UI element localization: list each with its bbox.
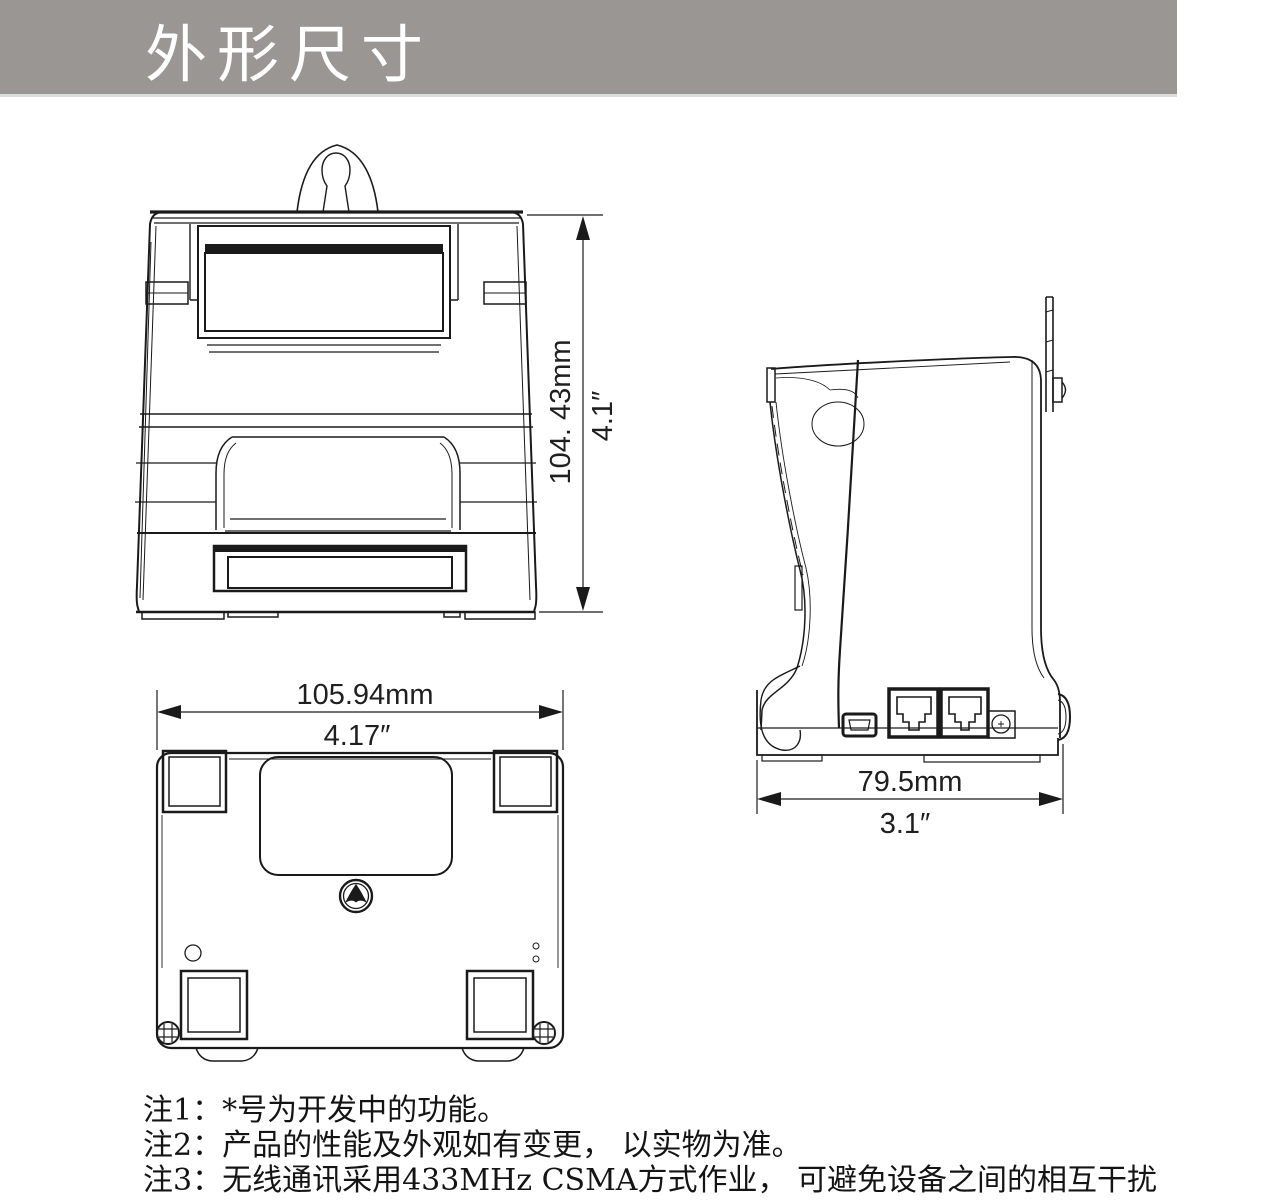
- mini-usb-port: [843, 714, 876, 736]
- front-feet: [136, 612, 535, 619]
- pin-hole: [533, 943, 539, 949]
- rj-port: [889, 689, 938, 737]
- middle-band: [139, 414, 533, 427]
- side-depth-inch-label: 3.1″: [880, 808, 931, 840]
- bottom-view: 105.94mm 4.17″: [157, 679, 563, 1061]
- arrow-right-icon: [539, 705, 563, 719]
- center-emblem-icon: [340, 880, 372, 912]
- front-view: [135, 145, 537, 619]
- footnotes: 注1：*号为开发中的功能。 注2：产品的性能及外观如有变更， 以实物为准。 注3…: [143, 1093, 1157, 1198]
- power-jack: [988, 711, 1015, 738]
- corner-screw-icon: [157, 1022, 179, 1044]
- arrow-right-icon: [1039, 792, 1063, 806]
- arrow-down-icon: [576, 587, 590, 611]
- dimension-drawing: 104. 43mm 4.1″ 105.94mm 4.17″: [0, 0, 1271, 1200]
- base-slot: [137, 533, 536, 591]
- arrow-left-icon: [757, 792, 781, 806]
- arrow-left-icon: [157, 705, 181, 719]
- front-height-mm-label: 104. 43mm: [545, 339, 577, 484]
- cover-edge: [838, 360, 858, 728]
- paper-cover-window: [190, 224, 458, 352]
- front-height-inch-label: 4.1″: [587, 391, 619, 442]
- bottom-width-dimension: 105.94mm 4.17″: [157, 679, 563, 752]
- latch-oval: [812, 402, 864, 446]
- note-1: 注1：*号为开发中的功能。: [143, 1093, 1157, 1128]
- note-3: 注3：无线通讯采用433MHz CSMA方式作业， 可避免设备之间的相互干扰: [143, 1163, 1157, 1198]
- corner-screw-icon: [533, 1022, 555, 1044]
- foot-bump: [462, 1048, 524, 1061]
- bottom-width-inch-label: 4.17″: [324, 720, 391, 752]
- bottom-width-mm-label: 105.94mm: [296, 679, 433, 711]
- reset-hole: [185, 945, 201, 961]
- side-view: [757, 297, 1070, 762]
- side-depth-mm-label: 79.5mm: [858, 766, 963, 798]
- foot-bump: [196, 1048, 258, 1061]
- rj-port: [941, 689, 988, 737]
- front-height-dimension: 104. 43mm 4.1″: [527, 215, 619, 612]
- pin-hole: [533, 956, 539, 962]
- arrow-up-icon: [576, 216, 590, 240]
- note-2: 注2：产品的性能及外观如有变更， 以实物为准。: [143, 1128, 1157, 1163]
- hanger-tab: [297, 145, 378, 212]
- side-depth-dimension: 79.5mm 3.1″: [757, 744, 1063, 840]
- lower-panel: [135, 437, 537, 531]
- label-recess: [260, 757, 452, 875]
- antenna: [1046, 297, 1066, 412]
